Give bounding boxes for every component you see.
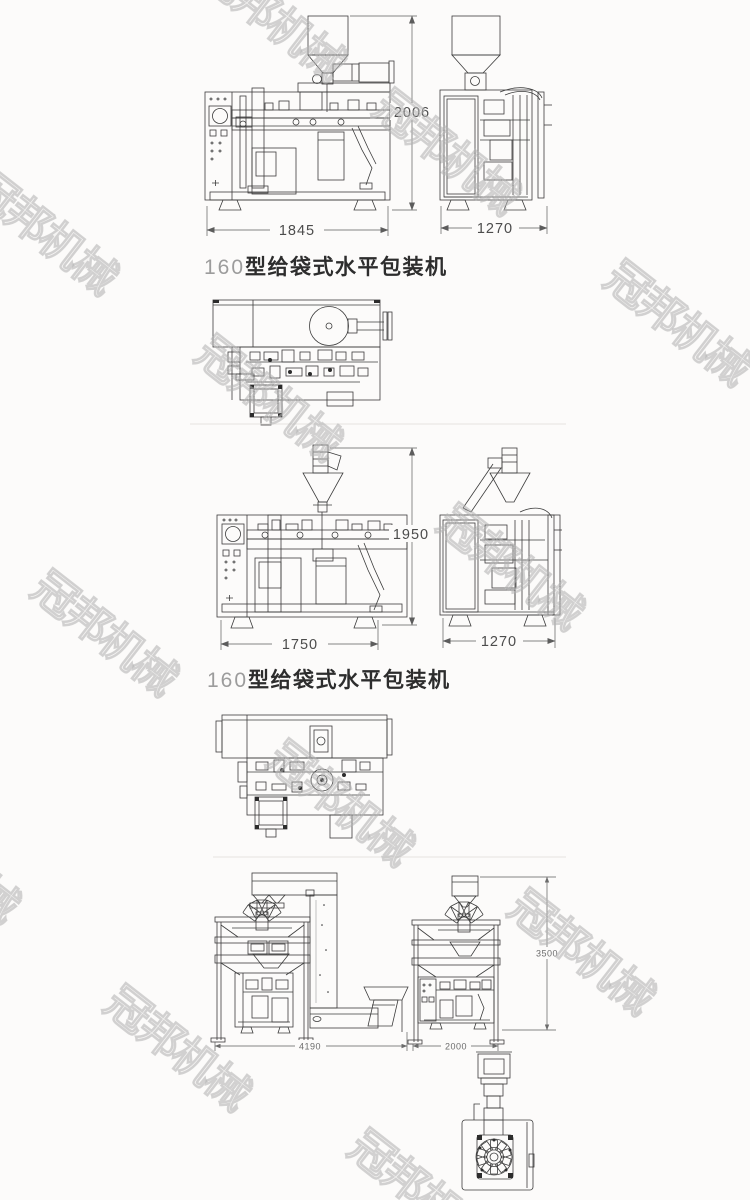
dimension-160b-height: 1950 [330, 448, 433, 625]
dim-label-1950: 1950 [393, 527, 429, 543]
drawing-160a-top-view [213, 300, 392, 425]
drawing-160b-front-view [217, 445, 407, 628]
dimension-line-height: 3500 [480, 877, 561, 1030]
dimension-160a-height: 2006 [350, 16, 434, 210]
title-text-b: 型给袋式水平包装机 [248, 669, 451, 692]
dim-label-3500: 3500 [536, 949, 558, 959]
dim-label-2006: 2006 [394, 105, 430, 121]
drawing-packing-line-right-station [408, 876, 504, 1044]
drawing-160a-front-view [205, 16, 394, 210]
drawing-160a-side-view [440, 16, 552, 210]
dim-label-2000: 2000 [445, 1042, 467, 1052]
dimension-160a-side-width: 1270 [441, 206, 547, 237]
dim-label-1270-a: 1270 [477, 221, 513, 237]
dimension-160a-front-width: 1845 [207, 206, 388, 239]
dim-label-1270-b: 1270 [481, 634, 517, 650]
dimension-line-length: 4190 [215, 1032, 407, 1052]
title-model-a: 160 [204, 256, 245, 279]
section-title-160a: 160型给袋式水平包装机 [204, 251, 448, 281]
dim-label-1750: 1750 [282, 637, 318, 653]
technical-drawings: 1845 2006 1270 [0, 0, 750, 1200]
dimension-machine-width: 2000 [413, 1040, 498, 1052]
title-text-a: 型给袋式水平包装机 [245, 256, 448, 279]
dimension-160b-side-width: 1270 [443, 618, 555, 650]
title-model-b: 160 [207, 669, 248, 692]
dim-label-1845: 1845 [279, 223, 315, 239]
drawing-weigher-top-view [462, 1052, 534, 1190]
drawing-160b-side-view [440, 448, 562, 626]
drawing-160b-top-view [216, 715, 392, 838]
dimension-160b-front-width: 1750 [221, 620, 378, 653]
drawing-packing-line-left-station [211, 873, 408, 1042]
product-drawings-page: 1845 2006 1270 [0, 0, 750, 1200]
section-title-160b: 160型给袋式水平包装机 [207, 664, 451, 694]
dim-label-4190: 4190 [299, 1042, 321, 1052]
